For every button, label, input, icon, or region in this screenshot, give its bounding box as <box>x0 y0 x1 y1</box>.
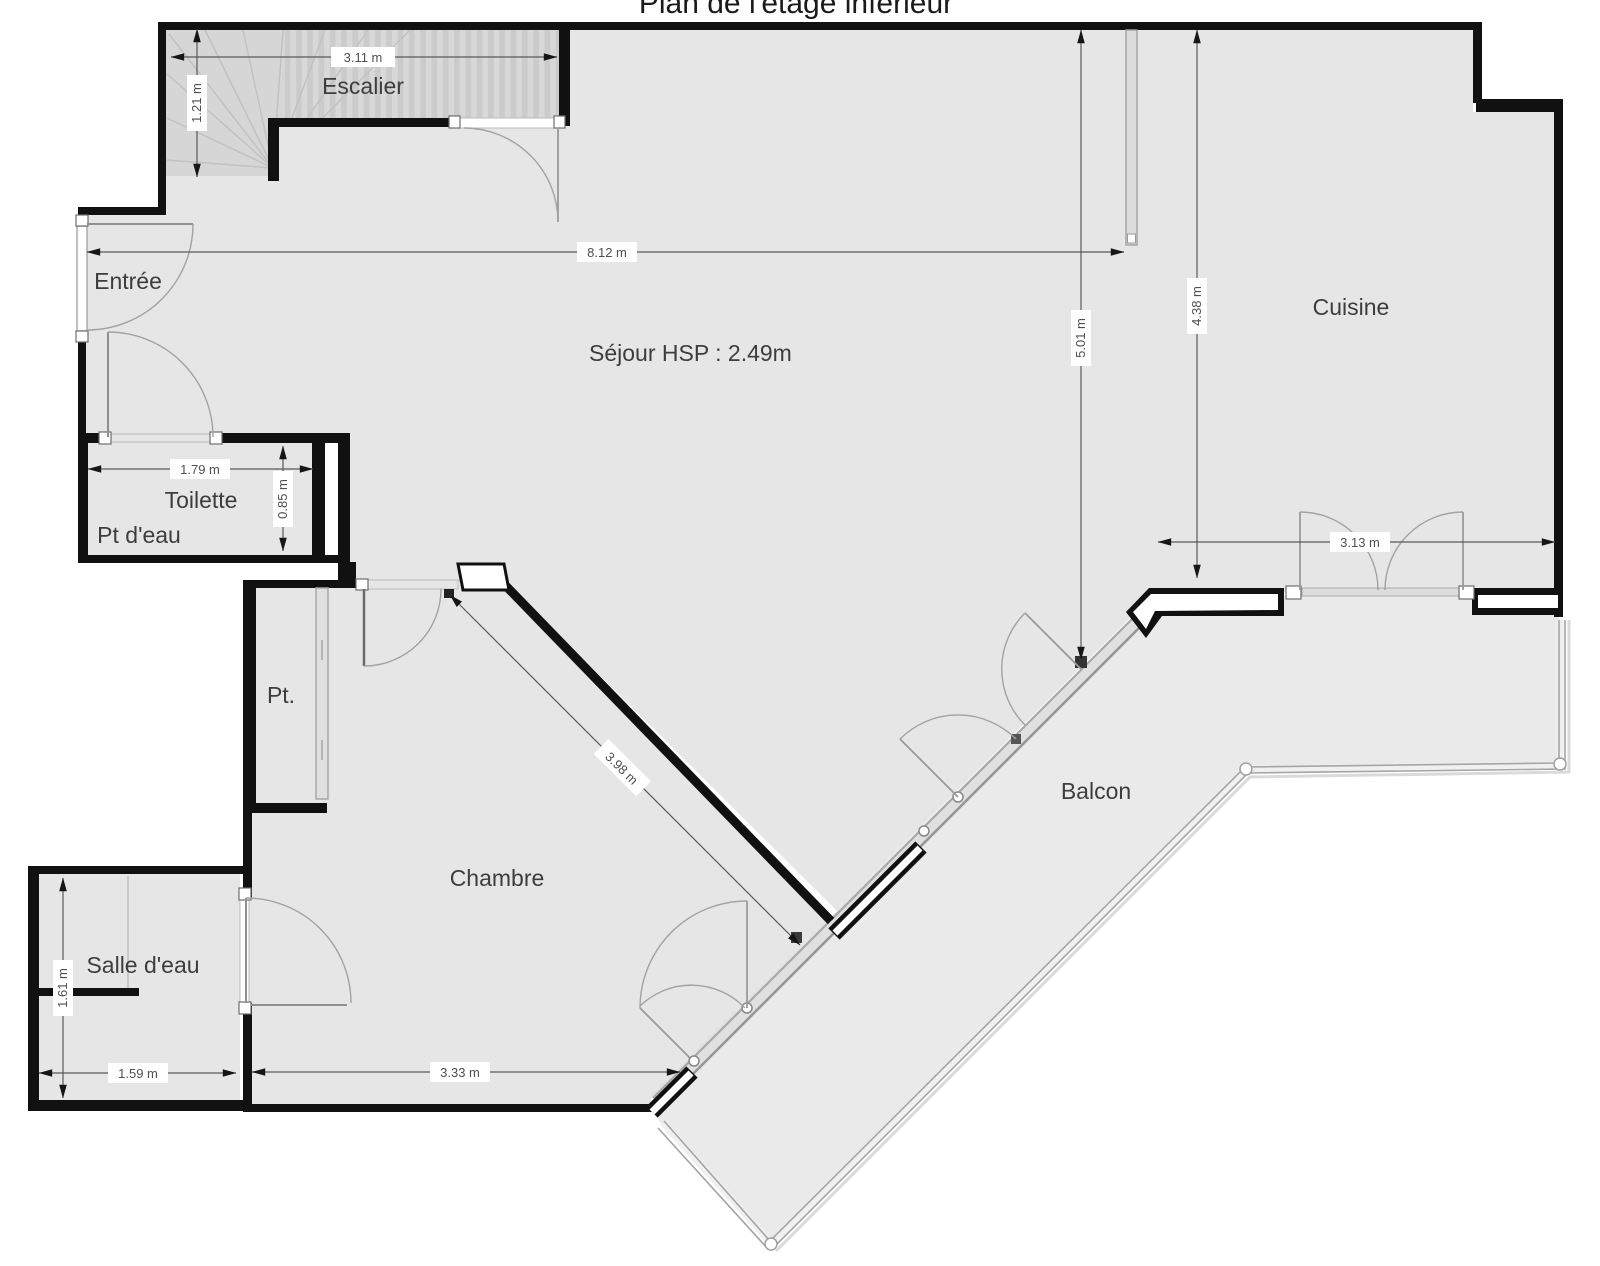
svg-text:Cuisine: Cuisine <box>1313 294 1390 320</box>
svg-text:Chambre: Chambre <box>450 865 545 891</box>
svg-text:8.12 m: 8.12 m <box>587 245 627 260</box>
svg-text:1.59 m: 1.59 m <box>118 1066 158 1081</box>
svg-text:Entrée: Entrée <box>94 268 162 294</box>
svg-text:Pt d'eau: Pt d'eau <box>97 522 181 548</box>
svg-text:Pt.: Pt. <box>267 682 295 708</box>
svg-text:Toilette: Toilette <box>165 487 238 513</box>
svg-text:0.85 m: 0.85 m <box>275 479 290 519</box>
svg-text:Balcon: Balcon <box>1061 778 1131 804</box>
svg-text:5.01 m: 5.01 m <box>1073 318 1088 358</box>
svg-text:Séjour HSP : 2.49m: Séjour HSP : 2.49m <box>589 340 792 366</box>
svg-text:Escalier: Escalier <box>322 73 404 99</box>
svg-text:3.33 m: 3.33 m <box>440 1065 480 1080</box>
svg-text:3.11 m: 3.11 m <box>344 50 383 65</box>
svg-text:1.79 m: 1.79 m <box>180 462 220 477</box>
svg-text:Salle d'eau: Salle d'eau <box>86 952 199 978</box>
svg-text:1.61 m: 1.61 m <box>55 968 70 1008</box>
svg-text:3.13 m: 3.13 m <box>1340 535 1380 550</box>
svg-text:4.38 m: 4.38 m <box>1189 286 1204 326</box>
svg-text:1.21 m: 1.21 m <box>189 83 204 123</box>
svg-text:Plan de l'étage inférieur: Plan de l'étage inférieur <box>639 0 953 20</box>
